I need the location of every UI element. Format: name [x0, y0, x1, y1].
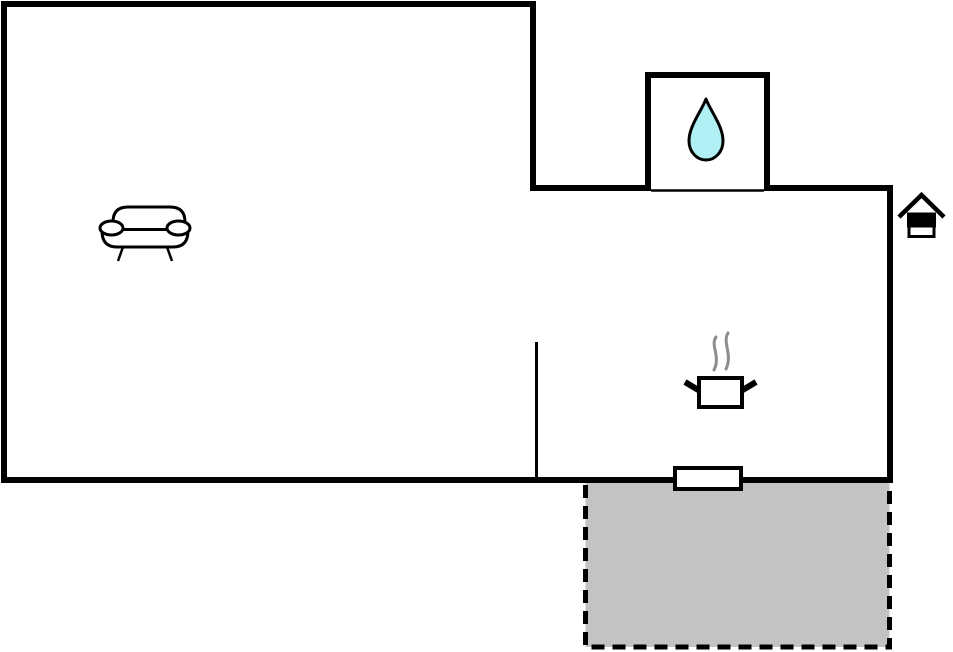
sofa-right-arm [167, 221, 190, 235]
terrace-door [675, 468, 741, 489]
terrace-area [586, 480, 890, 647]
house-entrance-icon [899, 195, 944, 237]
floor-plan [0, 0, 953, 652]
terrace-floor [586, 480, 890, 647]
pot-body [699, 378, 742, 407]
house-body-top [907, 213, 936, 228]
sofa-left-arm [100, 221, 123, 235]
